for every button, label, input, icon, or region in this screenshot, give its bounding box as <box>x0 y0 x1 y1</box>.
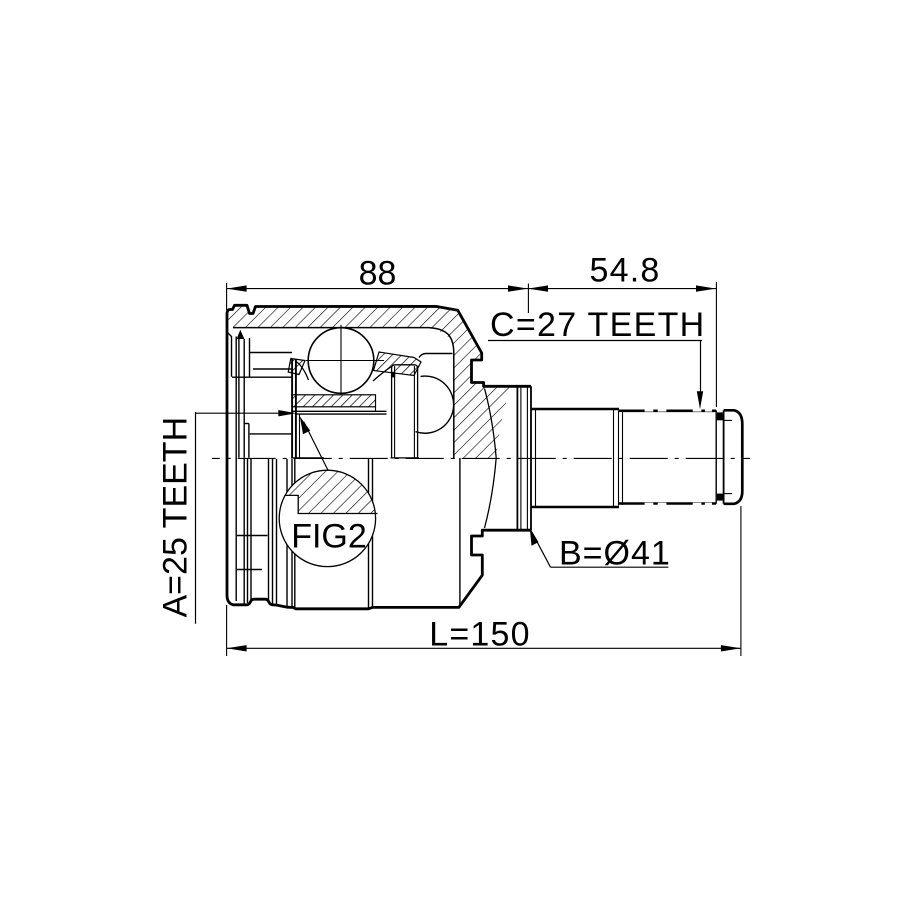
svg-text:88: 88 <box>359 255 397 293</box>
svg-text:54.8: 54.8 <box>590 252 661 290</box>
svg-text:L=150: L=150 <box>429 616 531 654</box>
svg-text:A=25 TEETH: A=25 TEETH <box>157 417 195 618</box>
svg-text:C=27 TEETH: C=27 TEETH <box>490 306 706 344</box>
svg-text:FIG2: FIG2 <box>291 518 367 556</box>
